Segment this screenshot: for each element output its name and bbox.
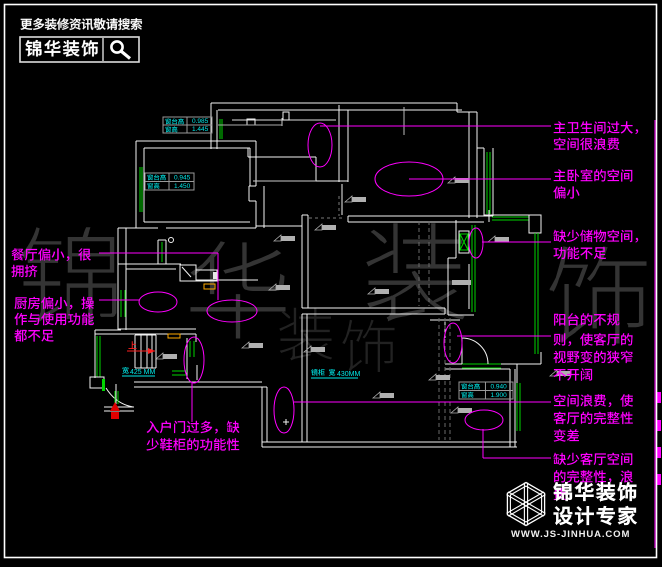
svg-text:0.985: 0.985 (192, 118, 209, 125)
svg-text:1.900: 1.900 (490, 392, 507, 399)
svg-text:1.450: 1.450 (174, 183, 191, 190)
svg-text:425 MM: 425 MM (130, 369, 155, 376)
svg-text:WWW.JS-JINHUA.COM: WWW.JS-JINHUA.COM (511, 529, 630, 540)
svg-text:0.940: 0.940 (490, 384, 507, 391)
svg-text:1.445: 1.445 (192, 126, 209, 133)
svg-text:0.945: 0.945 (174, 175, 191, 182)
svg-text:430MM: 430MM (337, 371, 361, 378)
